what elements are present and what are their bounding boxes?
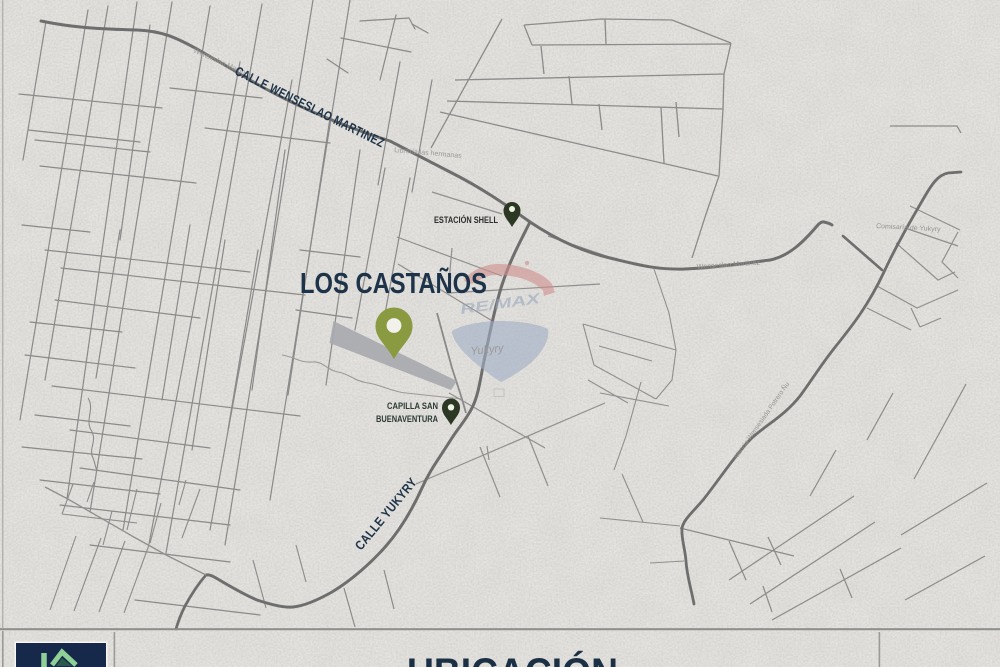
svg-text:ESTACIÓN SHELL: ESTACIÓN SHELL	[434, 214, 498, 226]
svg-text:LOS CASTAÑOS: LOS CASTAÑOS	[300, 266, 487, 300]
svg-text:CAPILLA SAN: CAPILLA SAN	[387, 401, 438, 411]
svg-text:BUENAVENTURA: BUENAVENTURA	[376, 414, 438, 424]
svg-text:UBICACIÓN: UBICACIÓN	[407, 649, 618, 667]
